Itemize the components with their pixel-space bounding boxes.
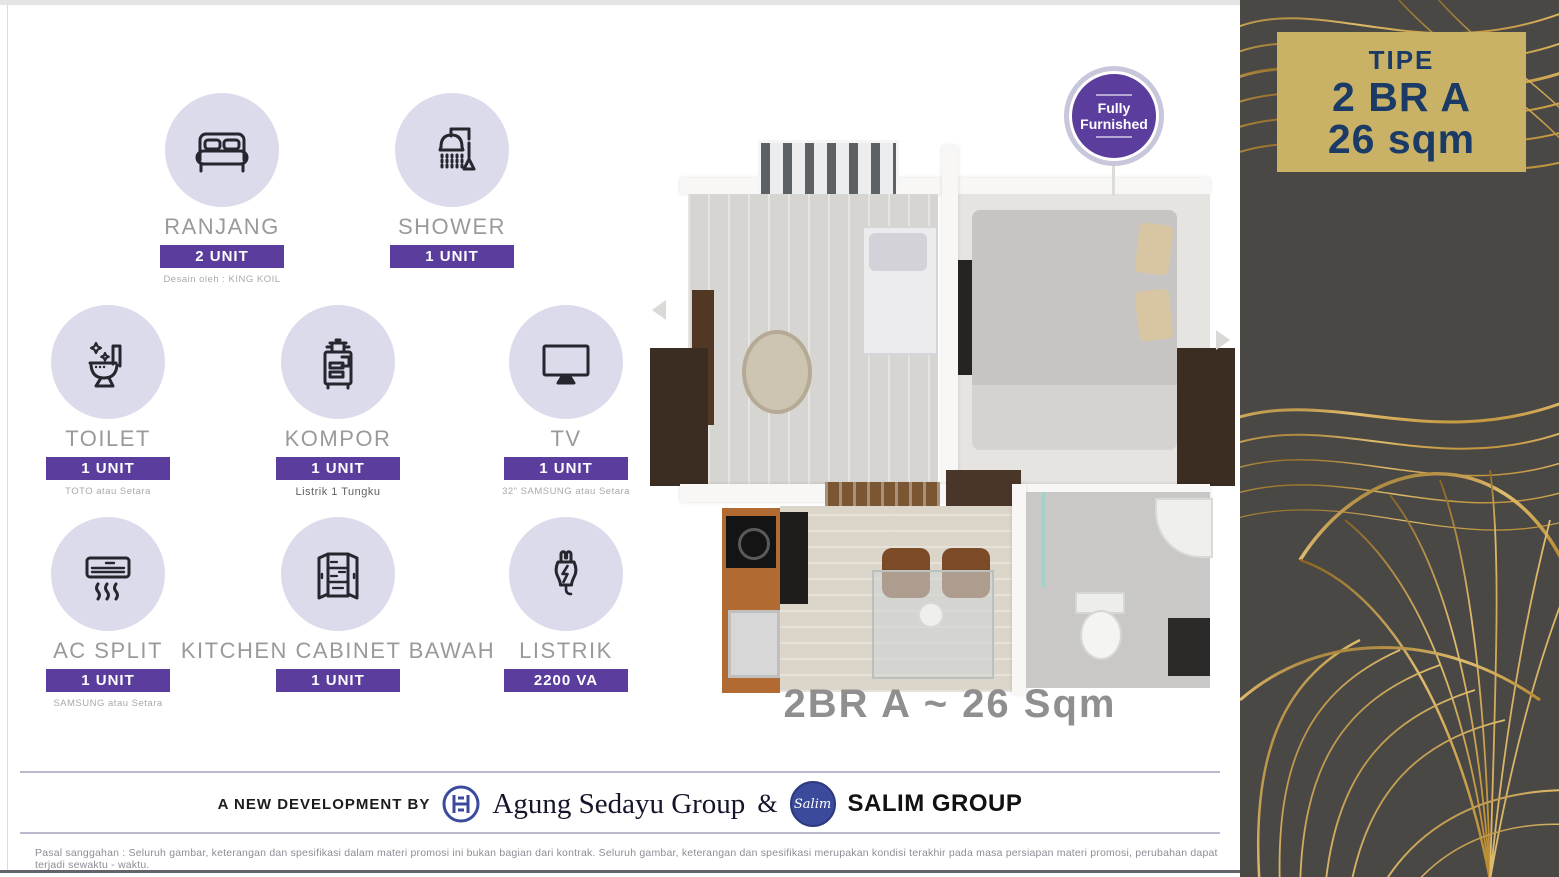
- feature-note: 32" SAMSUNG atau Setara: [502, 486, 630, 497]
- feature-name: AC SPLIT: [53, 638, 163, 664]
- salim-logo-icon: Salim: [790, 781, 836, 827]
- stove-icon: [281, 305, 395, 419]
- feature-item-ac: AC SPLIT 1 UNIT SAMSUNG atau Setara: [8, 517, 208, 709]
- feature-name: SHOWER: [398, 214, 506, 240]
- hall-bench: [825, 482, 940, 508]
- unit-badge: 2200 VA: [504, 669, 628, 692]
- sink: [728, 610, 780, 678]
- bed-icon: [165, 93, 279, 207]
- ac-icon: [51, 517, 165, 631]
- shower-glass: [1042, 492, 1045, 587]
- feature-name: TOILET: [65, 426, 151, 452]
- pillow-2: [1134, 288, 1173, 341]
- feature-item-listrik: LISTRIK 2200 VA: [466, 517, 666, 709]
- badge-line1: Fully: [1098, 100, 1131, 116]
- feature-note: Listrik 1 Tungku: [295, 486, 380, 498]
- wall-bath: [1012, 484, 1026, 694]
- type-size: 26 sqm: [1328, 118, 1475, 160]
- brochure-page: RANJANG 2 UNIT Desain oleh : KING KOIL S…: [0, 0, 1559, 877]
- feature-item-kitchen-cabinet: KITCHEN CABINET BAWAH 1 UNIT: [188, 517, 488, 709]
- tv-icon: [509, 305, 623, 419]
- wardrobe-left: [650, 348, 708, 486]
- arrow-icon: [652, 300, 666, 320]
- footer-rule-bottom: [20, 832, 1220, 834]
- feature-name: KOMPOR: [285, 426, 392, 452]
- feature-item-tv: TV 1 UNIT 32" SAMSUNG atau Setara: [466, 305, 666, 497]
- floor-plan-render: [650, 140, 1235, 685]
- disclaimer-text: Pasal sanggahan : Seluruh gambar, ketera…: [35, 847, 1225, 871]
- feature-note: TOTO atau Setara: [65, 486, 151, 497]
- pillow-1: [1134, 222, 1174, 276]
- toilet-bowl: [1080, 610, 1122, 660]
- feature-item-ranjang: RANJANG 2 UNIT Desain oleh : KING KOIL: [122, 93, 322, 285]
- feature-item-shower: SHOWER 1 UNIT: [352, 93, 552, 285]
- chair: [742, 330, 812, 414]
- footer-rule-top: [20, 771, 1220, 773]
- unit-badge: 1 UNIT: [276, 669, 400, 692]
- badge-rule-bottom: [1096, 136, 1132, 138]
- feature-item-toilet: TOILET 1 UNIT TOTO atau Setara: [8, 305, 208, 497]
- plug-icon: [509, 517, 623, 631]
- single-bed-pillow: [869, 233, 927, 271]
- badge-pin: [1112, 166, 1115, 196]
- plan-caption: 2BR A ~ 26 Sqm: [700, 682, 1200, 727]
- bottom-bar: [0, 870, 1240, 873]
- feature-note: Desain oleh : KING KOIL: [163, 274, 280, 285]
- double-bed-blanket: [972, 385, 1177, 450]
- developer-row: A NEW DEVELOPMENT BY Agung Sedayu Group …: [0, 778, 1240, 830]
- unit-badge: 1 UNIT: [46, 457, 170, 480]
- top-strip: [0, 0, 1240, 5]
- unit-badge: 1 UNIT: [276, 457, 400, 480]
- feature-name: KITCHEN CABINET BAWAH: [181, 638, 495, 664]
- unit-badge: 2 UNIT: [160, 245, 284, 268]
- toilet-icon: [51, 305, 165, 419]
- developer-1-name: Agung Sedayu Group: [492, 788, 745, 821]
- fully-furnished-badge: Fully Furnished: [1064, 66, 1164, 166]
- kitchen-appliance: [780, 512, 808, 604]
- feature-note: SAMSUNG atau Setara: [53, 698, 162, 709]
- unit-badge: 1 UNIT: [390, 245, 514, 268]
- table-plant: [918, 602, 944, 628]
- agung-sedayu-logo-icon: [442, 785, 480, 823]
- arrow-icon: [1216, 330, 1230, 350]
- feature-item-kompor: KOMPOR 1 UNIT Listrik 1 Tungku: [238, 305, 438, 498]
- feature-name: RANJANG: [164, 214, 280, 240]
- feature-name: LISTRIK: [519, 638, 613, 664]
- unit-badge: 1 UNIT: [504, 457, 628, 480]
- type-box: TIPE 2 BR A 26 sqm: [1277, 32, 1526, 172]
- type-label: TIPE: [1369, 45, 1435, 76]
- ampersand: &: [757, 789, 777, 819]
- type-name: 2 BR A: [1332, 76, 1471, 118]
- right-decor-panel: TIPE 2 BR A 26 sqm: [1240, 0, 1559, 877]
- developer-prefix: A NEW DEVELOPMENT BY: [218, 796, 431, 813]
- unit-badge: 1 UNIT: [46, 669, 170, 692]
- feature-name: TV: [550, 426, 581, 452]
- developer-2-name: SALIM GROUP: [848, 790, 1023, 818]
- badge-line2: Furnished: [1080, 116, 1148, 132]
- bath-mat: [1168, 618, 1210, 676]
- wall-divider: [942, 146, 958, 486]
- burner: [738, 528, 770, 560]
- cabinet-icon: [281, 517, 395, 631]
- shower-icon: [395, 93, 509, 207]
- badge-rule-top: [1096, 94, 1132, 96]
- wardrobe-right: [1177, 348, 1235, 486]
